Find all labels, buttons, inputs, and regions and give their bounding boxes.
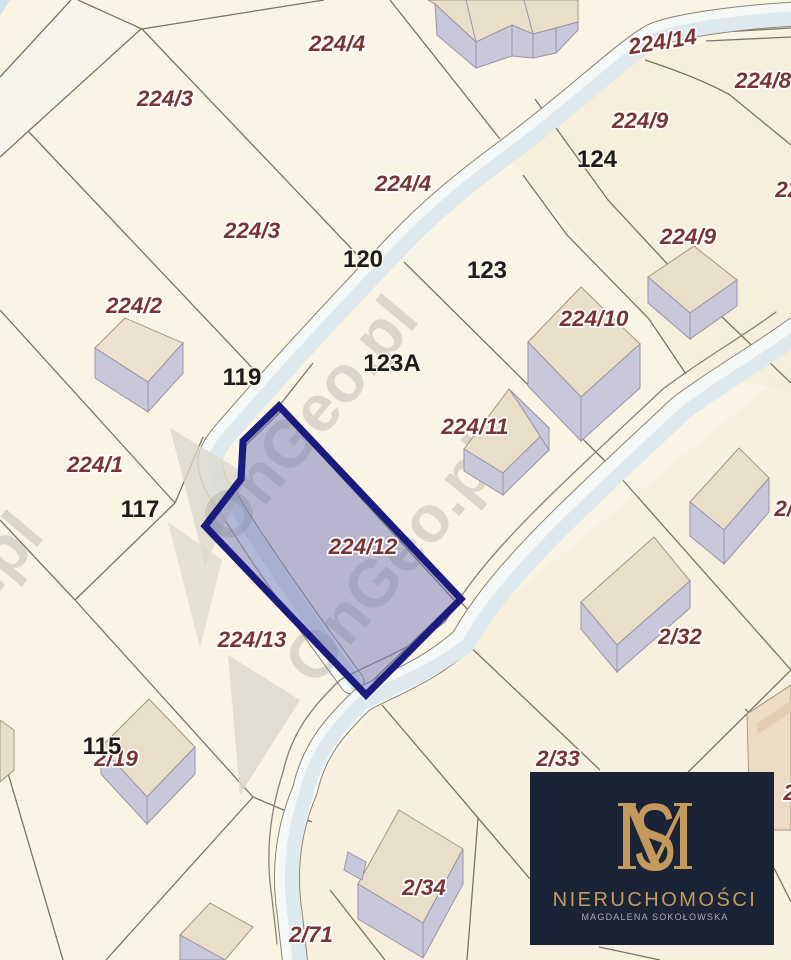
svg-text:224/1: 224/1 [66, 452, 123, 477]
svg-text:224/9: 224/9 [611, 108, 669, 133]
svg-text:224/3: 224/3 [136, 86, 194, 111]
svg-text:2/34: 2/34 [401, 875, 446, 900]
svg-text:224/12: 224/12 [328, 534, 398, 559]
svg-text:224/9: 224/9 [659, 224, 717, 249]
svg-text:123: 123 [467, 257, 507, 284]
svg-text:224/10: 224/10 [559, 306, 629, 331]
svg-text:S: S [633, 785, 676, 892]
svg-text:224/3: 224/3 [223, 218, 281, 243]
svg-text:2/4: 2/4 [782, 780, 791, 805]
svg-text:224/4: 224/4 [374, 171, 432, 196]
svg-text:224: 224 [774, 177, 791, 202]
svg-text:115: 115 [83, 733, 122, 760]
svg-text:2/4: 2/4 [773, 496, 791, 521]
svg-text:120: 120 [343, 246, 383, 273]
svg-text:224/4: 224/4 [308, 31, 366, 56]
svg-text:123A: 123A [363, 350, 420, 377]
svg-text:2/32: 2/32 [657, 624, 702, 649]
svg-text:224/2: 224/2 [105, 293, 163, 318]
svg-text:MAGDALENA SOKOŁOWSKA: MAGDALENA SOKOŁOWSKA [581, 912, 728, 922]
svg-text:NIERUCHOMOŚCI: NIERUCHOMOŚCI [553, 887, 758, 911]
svg-text:117: 117 [121, 496, 160, 523]
svg-text:124: 124 [577, 146, 618, 173]
svg-text:2/33: 2/33 [535, 746, 580, 771]
svg-text:119: 119 [223, 364, 262, 391]
svg-text:2/71: 2/71 [288, 922, 333, 947]
svg-text:224/13: 224/13 [217, 627, 287, 652]
svg-text:224/8: 224/8 [734, 68, 791, 93]
svg-text:224/11: 224/11 [440, 414, 508, 439]
